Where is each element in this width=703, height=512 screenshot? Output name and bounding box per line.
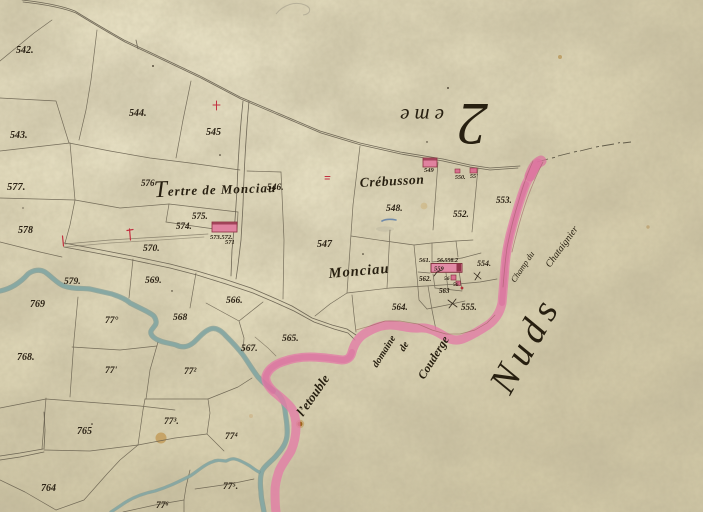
svg-text:549: 549 [424, 167, 435, 174]
svg-text:768.: 768. [17, 352, 35, 363]
svg-text:56: 56 [444, 276, 450, 282]
svg-text:77⁶: 77⁶ [156, 501, 169, 511]
svg-text:561.: 561. [419, 257, 431, 264]
svg-text:566.: 566. [226, 296, 243, 306]
svg-text:575.: 575. [192, 211, 208, 221]
svg-text:543.: 543. [10, 130, 28, 141]
svg-text:564.: 564. [392, 302, 408, 312]
svg-text:579.: 579. [64, 277, 81, 287]
svg-text:547: 547 [317, 239, 333, 250]
svg-text:555.: 555. [461, 302, 477, 312]
svg-text:552.: 552. [453, 209, 469, 219]
svg-text:769: 769 [30, 299, 45, 310]
svg-text:568: 568 [173, 313, 188, 323]
svg-text:77³.: 77³. [164, 417, 179, 427]
svg-text:77': 77' [105, 366, 118, 376]
svg-text:550.: 550. [455, 175, 466, 181]
svg-text:544.: 544. [129, 108, 147, 119]
svg-text:eme: eme [395, 104, 444, 128]
svg-text:562.: 562. [419, 275, 432, 283]
svg-text:764: 764 [41, 483, 56, 494]
svg-text:559: 559 [434, 266, 445, 273]
svg-text:554.: 554. [477, 259, 491, 268]
svg-text:569.: 569. [145, 276, 162, 286]
svg-text:77°: 77° [105, 315, 119, 326]
svg-text:77⁴: 77⁴ [225, 432, 239, 442]
svg-text:548.: 548. [386, 204, 403, 214]
svg-text:577.: 577. [7, 182, 25, 193]
svg-text:553.: 553. [496, 195, 512, 205]
svg-text:570.: 570. [143, 244, 160, 254]
svg-text:2: 2 [458, 91, 488, 157]
svg-text:578: 578 [18, 225, 33, 236]
svg-text:565.: 565. [282, 334, 299, 344]
svg-text:56.558.2: 56.558.2 [437, 258, 458, 264]
svg-text:567.: 567. [241, 344, 258, 354]
svg-text:77²: 77² [184, 367, 198, 377]
svg-text:56: 56 [453, 282, 459, 288]
svg-text:77⁵.: 77⁵. [223, 482, 238, 492]
svg-text:571: 571 [225, 239, 235, 246]
svg-text:574.: 574. [176, 221, 192, 231]
svg-text:55': 55' [470, 174, 478, 180]
svg-text:765: 765 [77, 426, 92, 437]
svg-text:542.: 542. [16, 45, 34, 56]
svg-text:545: 545 [206, 127, 221, 138]
svg-text:563: 563 [439, 287, 450, 295]
